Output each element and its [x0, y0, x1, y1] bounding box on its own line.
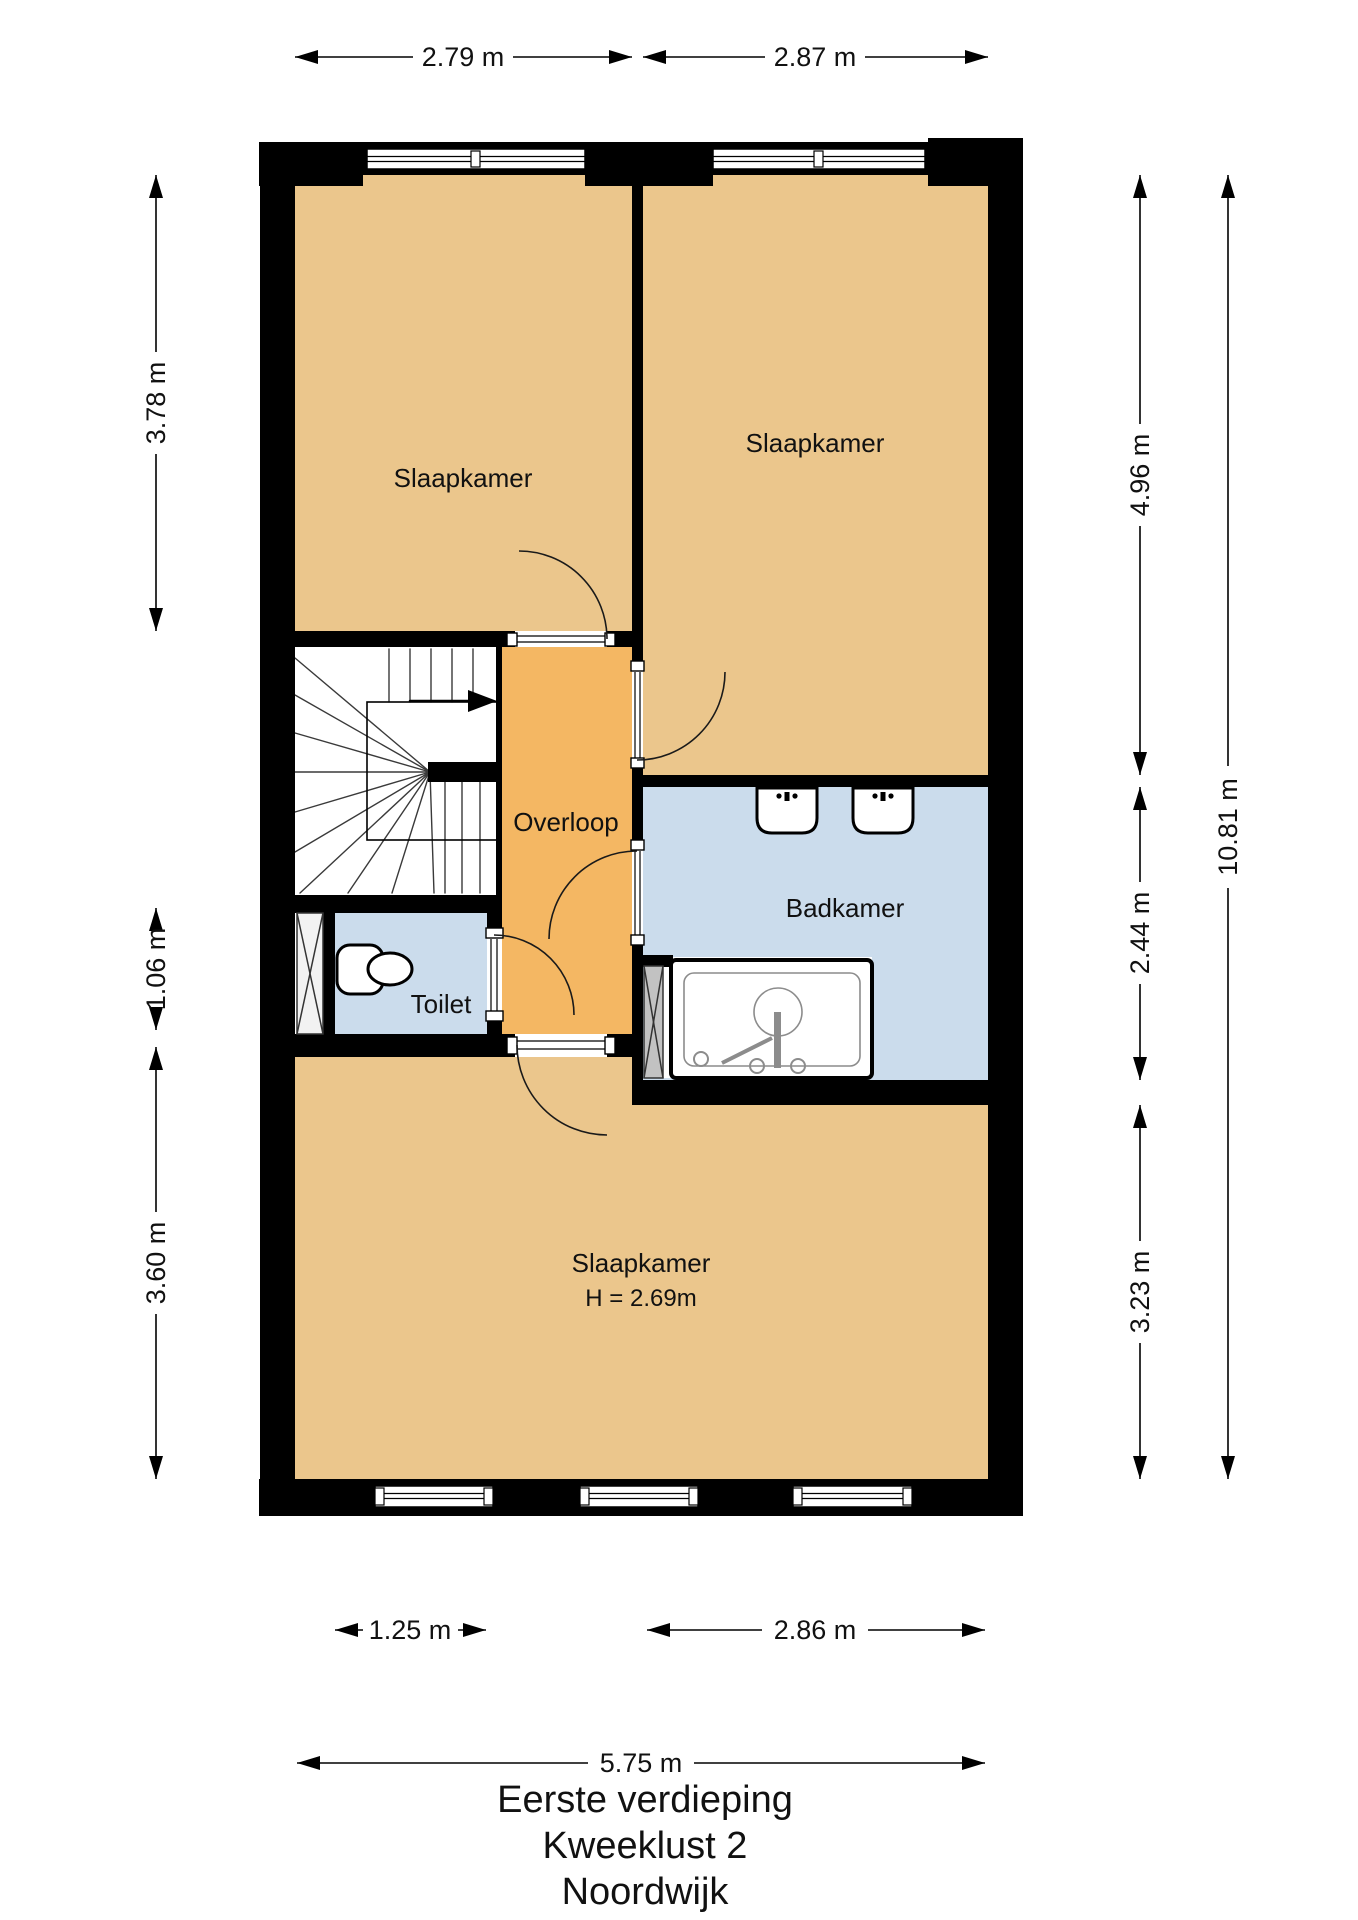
stair-landing-bar [428, 762, 497, 782]
window-bottom-middle [580, 1486, 698, 1507]
dim-text: 3.78 m [141, 362, 171, 445]
label-slaapkamer-bottom-height: H = 2.69m [585, 1285, 696, 1312]
wall-badkamer-bedroom [632, 1080, 988, 1105]
label-slaapkamer-top-left: Slaapkamer [394, 463, 533, 493]
window-bottom-left [375, 1486, 493, 1507]
dim-text: 2.79 m [422, 42, 505, 72]
bathtub [671, 960, 872, 1078]
dim-left-378: 3.78 m [141, 175, 171, 631]
room-floor-slaapkamer-top-right [643, 175, 988, 775]
dim-right-323: 3.23 m [1125, 1105, 1155, 1479]
wall-stair-landing-divider [496, 647, 502, 913]
label-overloop: Overloop [513, 807, 619, 837]
wall-pier-top-middle [585, 142, 713, 186]
shaft-next-to-bathtub [644, 966, 663, 1078]
label-slaapkamer-bottom: Slaapkamer [572, 1248, 711, 1278]
window-top-right [713, 149, 925, 169]
dim-right-244: 2.44 m [1125, 787, 1155, 1080]
dim-text: 2.87 m [774, 42, 857, 72]
title-floor: Eerste verdieping [497, 1779, 793, 1821]
shower-stand [774, 1012, 781, 1068]
floorplan-page: Slaapkamer Slaapkamer Overloop Badkamer … [0, 0, 1358, 1920]
dim-text: 2.86 m [774, 1615, 857, 1645]
dim-text: 1.06 m [141, 928, 171, 1011]
dim-left-106: 1.06 m [141, 908, 171, 1030]
dim-text: 3.60 m [141, 1222, 171, 1305]
window-bottom-right [793, 1486, 912, 1507]
dim-right-496: 4.96 m [1125, 175, 1155, 775]
wall-pier-bottom-left [259, 1479, 374, 1516]
dim-text: 2.44 m [1125, 892, 1155, 975]
title-street: Kweeklust 2 [543, 1825, 748, 1867]
dim-bottom-125: 1.25 m [335, 1615, 486, 1645]
sink-right [853, 788, 913, 833]
wall-tub-stub [632, 955, 673, 967]
dim-text: 10.81 m [1213, 778, 1243, 876]
dim-bottom-575: 5.75 m [297, 1748, 985, 1778]
room-floor-slaapkamer-top-left [295, 175, 632, 631]
title-city: Noordwijk [562, 1871, 730, 1913]
wall-pier-bottom-right [913, 1479, 1023, 1516]
dim-right-1081: 10.81 m [1213, 175, 1243, 1479]
floorplan-drawing: Slaapkamer Slaapkamer Overloop Badkamer … [0, 0, 1358, 1920]
label-toilet: Toilet [411, 989, 472, 1019]
shaft-next-to-toilet [297, 913, 323, 1034]
dim-top-left: 2.79 m [295, 42, 632, 72]
dim-text: 1.25 m [369, 1615, 452, 1645]
dim-left-360: 3.60 m [141, 1047, 171, 1479]
dim-text: 3.23 m [1125, 1251, 1155, 1334]
room-floor-overloop [502, 647, 632, 1034]
wall-bedroomTR-badkamer [632, 775, 988, 787]
dim-text: 4.96 m [1125, 434, 1155, 517]
dim-top-right: 2.87 m [643, 42, 988, 72]
wall-shaft-toilet [323, 913, 335, 1034]
dim-bottom-286: 2.86 m [647, 1615, 985, 1645]
wall-stairs-toilet [295, 895, 502, 913]
dim-text: 5.75 m [600, 1748, 683, 1778]
plan-title: Eerste verdieping Kweeklust 2 Noordwijk [497, 1779, 793, 1913]
label-slaapkamer-top-right: Slaapkamer [746, 428, 885, 458]
label-badkamer: Badkamer [786, 893, 905, 923]
wall-left [260, 142, 295, 1516]
window-top-left [367, 149, 585, 169]
sink-left [757, 788, 817, 833]
wall-right [988, 142, 1023, 1516]
